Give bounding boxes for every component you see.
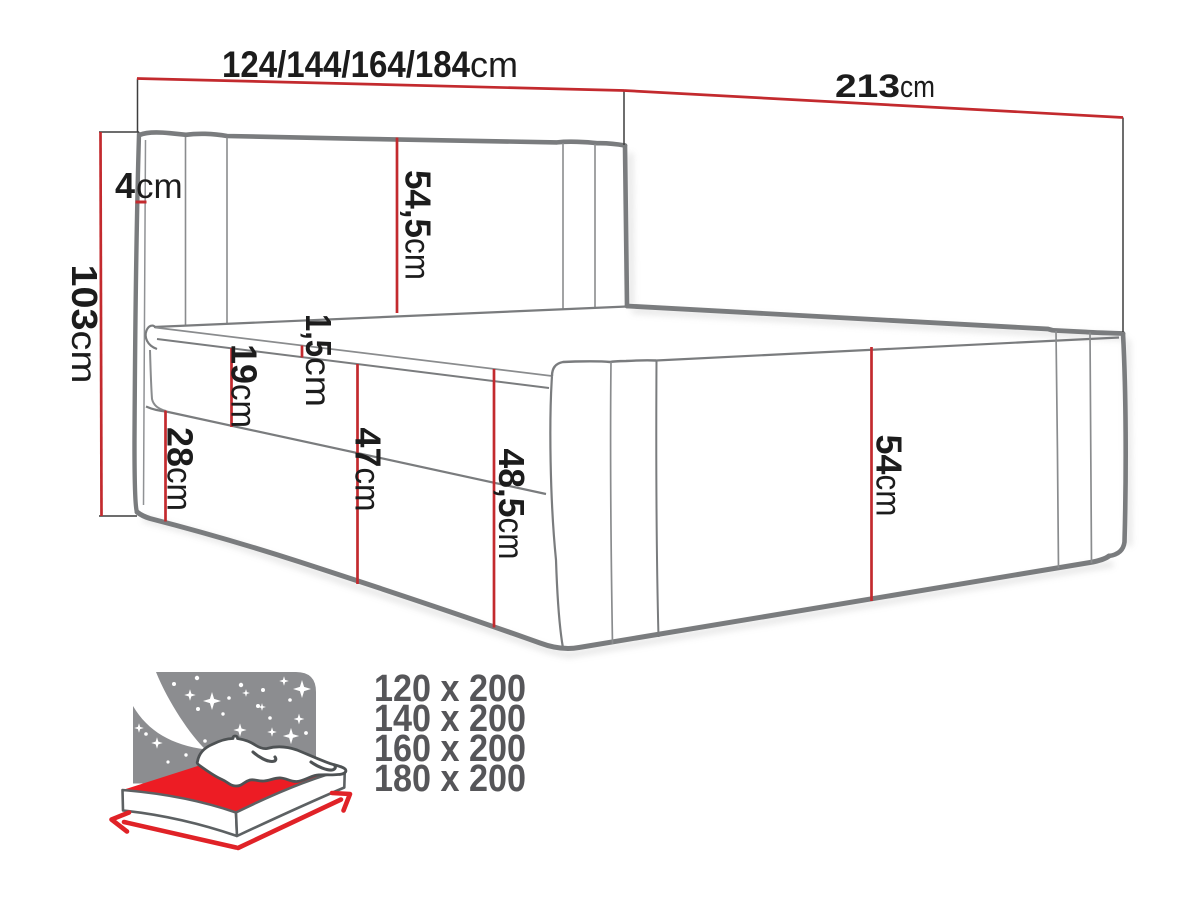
svg-text:cm: cm [869, 475, 908, 517]
svg-text:cm: cm [224, 384, 263, 428]
svg-text:54,5: 54,5 [398, 170, 439, 238]
svg-text:cm: cm [398, 238, 437, 280]
svg-text:48,5: 48,5 [491, 449, 532, 518]
svg-text:4: 4 [115, 165, 135, 206]
svg-text:cm: cm [348, 468, 387, 512]
svg-text:cm: cm [160, 467, 199, 511]
svg-text:cm: cm [900, 69, 935, 104]
svg-text:103: 103 [64, 265, 105, 331]
svg-text:124/144/164/184: 124/144/164/184 [222, 44, 470, 85]
svg-text:19: 19 [224, 344, 265, 384]
svg-text:47: 47 [348, 428, 389, 468]
svg-text:cm: cm [136, 167, 183, 206]
svg-text:cm: cm [491, 518, 530, 560]
svg-text:cm: cm [298, 357, 337, 407]
svg-text:213: 213 [835, 68, 900, 104]
svg-text:54: 54 [869, 435, 910, 475]
svg-text:cm: cm [64, 331, 103, 384]
svg-text:180 x 200: 180 x 200 [374, 758, 526, 800]
svg-text:1,5: 1,5 [298, 314, 339, 357]
svg-text:cm: cm [470, 44, 518, 85]
svg-text:28: 28 [160, 427, 201, 467]
